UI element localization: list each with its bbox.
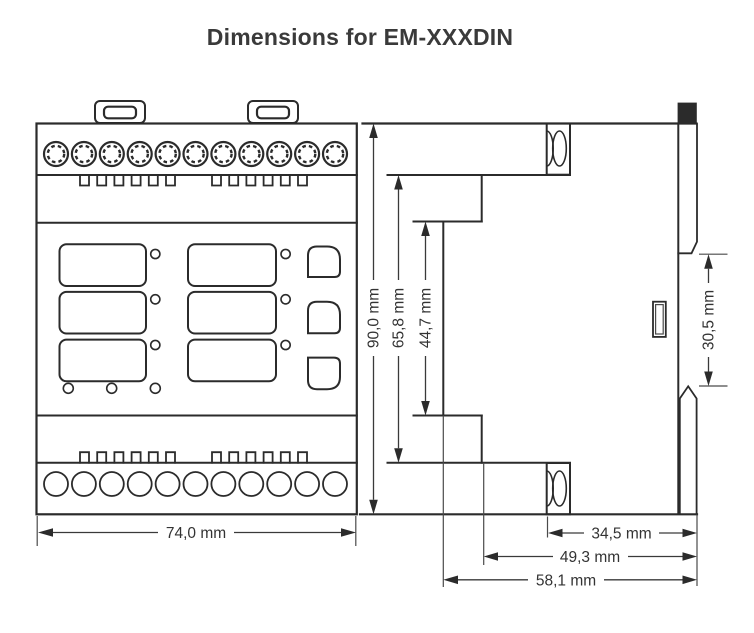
dimension-depth-mid: 49,3 mm <box>484 549 697 566</box>
dim-label-overall-height: 90,0 mm <box>366 288 383 348</box>
arrowhead-right <box>683 576 698 585</box>
arrowhead-left <box>548 529 563 538</box>
arrowhead-bottom <box>394 448 403 463</box>
mounting-tab-left <box>95 101 145 123</box>
arrowhead-left <box>443 576 458 585</box>
dim-label-depth-mid: 49,3 mm <box>560 549 620 566</box>
latch-slot-outer <box>653 302 666 337</box>
dim-label-rail-section: 30,5 mm <box>701 290 718 350</box>
latch-slot-inner <box>656 305 664 334</box>
side-terminal-bottom <box>547 463 570 514</box>
dim-label-front-width: 74,0 mm <box>166 525 226 542</box>
side-terminal-top <box>547 124 570 175</box>
rail-channel-upper <box>678 124 697 253</box>
arrowhead-bottom <box>369 500 378 515</box>
dim-label-mid-height: 65,8 mm <box>391 288 408 348</box>
dimension-front-width: 74,0 mm <box>37 516 356 546</box>
rail-hook-lower <box>680 386 697 513</box>
din-clip-black <box>678 103 697 124</box>
dimension-diagram: Dimensions for EM-XXXDIN <box>0 0 754 633</box>
screw-ellipse <box>553 131 567 166</box>
arrowhead-right <box>683 552 698 561</box>
front-view <box>37 101 357 514</box>
dimension-depth-terminal: 34,5 mm <box>548 526 697 543</box>
din-rail-mount <box>653 103 697 514</box>
arrowhead-top <box>369 124 378 139</box>
dim-label-inner-height: 44,7 mm <box>418 288 435 348</box>
arrowhead-left <box>38 528 53 537</box>
arrowhead-bottom <box>421 401 430 416</box>
dimension-overall-height: 90,0 mm <box>366 124 383 515</box>
tab-outer <box>95 101 145 123</box>
dimension-rail-section: 30,5 mm <box>699 254 728 386</box>
dimension-depth-overall: 58,1 mm <box>443 573 697 590</box>
mounting-tab-right <box>248 101 298 123</box>
arrowhead-right <box>341 528 356 537</box>
dimension-mid-height: 65,8 mm <box>391 175 408 463</box>
arrowhead-top <box>394 175 403 190</box>
side-view <box>360 103 697 515</box>
dimension-inner-height: 44,7 mm <box>418 222 435 416</box>
arrowhead-left <box>484 552 498 561</box>
tab-outer <box>248 101 298 123</box>
arrowhead-bottom <box>704 372 713 387</box>
arrowhead-right <box>683 529 698 538</box>
screw-ellipse <box>553 471 567 506</box>
dim-label-depth-terminal: 34,5 mm <box>591 526 651 543</box>
technical-drawing: 74,0 mm 90,0 mm 65,8 mm 44,7 mm <box>0 0 754 633</box>
arrowhead-top <box>421 222 430 237</box>
dim-label-depth-overall: 58,1 mm <box>536 573 596 590</box>
arrowhead-top <box>704 254 713 269</box>
